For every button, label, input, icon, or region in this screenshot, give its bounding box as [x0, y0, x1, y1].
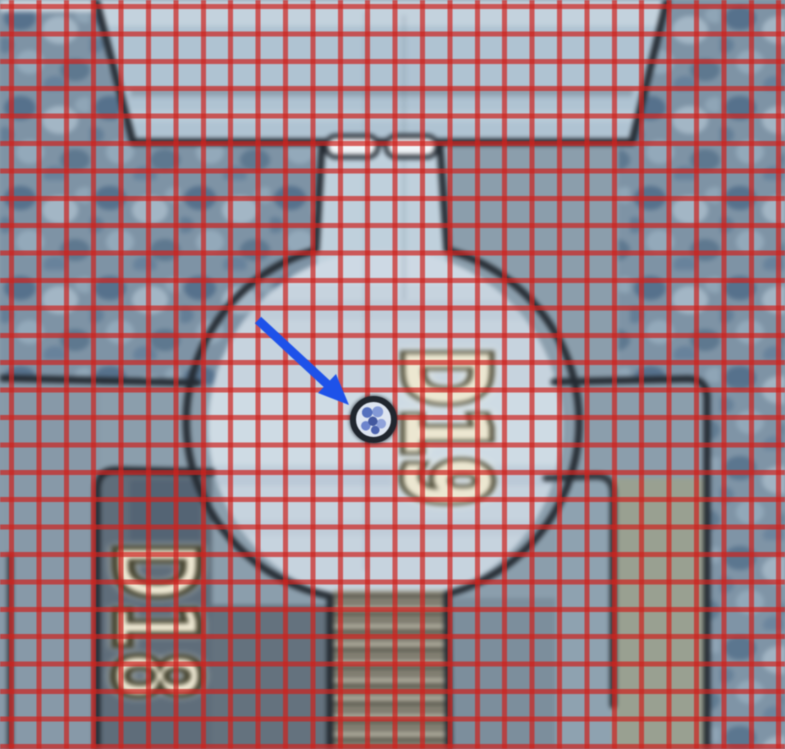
annotation-arrow [0, 0, 785, 749]
wafer-inspection-screenshot: D19 D18 [0, 0, 785, 749]
arrow-shaft [258, 320, 327, 384]
